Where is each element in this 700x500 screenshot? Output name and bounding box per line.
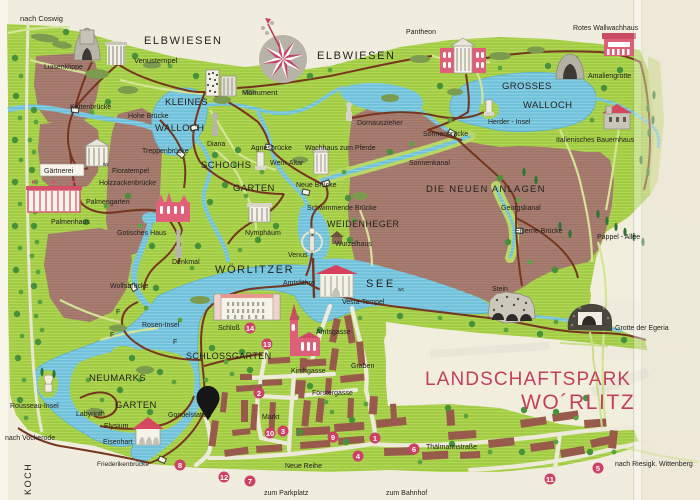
svg-text:Rosen-Insel: Rosen-Insel <box>142 322 180 329</box>
svg-text:11: 11 <box>546 475 554 484</box>
svg-text:Agnesbrücke: Agnesbrücke <box>251 145 292 152</box>
svg-text:Amtsfähre: Amtsfähre <box>283 280 315 287</box>
svg-text:Wern-Altar: Wern-Altar <box>270 160 304 167</box>
svg-text:Herder - Insel: Herder - Insel <box>488 119 531 126</box>
svg-text:2: 2 <box>257 389 261 398</box>
svg-text:Hohe Brücke: Hohe Brücke <box>128 113 169 120</box>
svg-text:nach Riesigk. Wittenberg: nach Riesigk. Wittenberg <box>615 461 693 468</box>
svg-text:KOCH: KOCH <box>23 463 33 495</box>
svg-text:Schloß: Schloß <box>218 325 240 332</box>
svg-text:Rotes Wallwachhaus: Rotes Wallwachhaus <box>573 25 639 32</box>
svg-text:zum Bahnhof: zum Bahnhof <box>386 490 427 497</box>
svg-text:Amaliengrotte: Amaliengrotte <box>588 73 631 80</box>
svg-text:Georgskanal: Georgskanal <box>501 205 541 212</box>
svg-text:Luisenklippe: Luisenklippe <box>44 64 83 71</box>
svg-text:SCHLOSSGARTEN: SCHLOSSGARTEN <box>186 351 272 361</box>
svg-text:Vesta-Tempel: Vesta-Tempel <box>342 299 385 306</box>
svg-text:6: 6 <box>412 445 416 454</box>
svg-text:Stein: Stein <box>492 286 508 293</box>
svg-text:Wurzelhaus: Wurzelhaus <box>335 241 372 248</box>
svg-text:WALLOCH: WALLOCH <box>155 123 204 134</box>
svg-text:3: 3 <box>281 427 285 436</box>
svg-text:F: F <box>173 339 177 346</box>
svg-text:Markt: Markt <box>262 414 280 421</box>
svg-text:10: 10 <box>266 429 274 438</box>
svg-text:ELBWIESEN: ELBWIESEN <box>317 50 396 62</box>
svg-text:WO´RLITZ: WO´RLITZ <box>521 391 635 414</box>
svg-text:Holzzackenbrücke: Holzzackenbrücke <box>99 180 156 187</box>
svg-text:zum Parkplatz: zum Parkplatz <box>264 490 309 497</box>
svg-text:13: 13 <box>263 340 271 349</box>
svg-text:Kirchgasse: Kirchgasse <box>291 368 326 375</box>
svg-text:WÖRLITZER: WÖRLITZER <box>215 264 294 276</box>
svg-text:Kettenbrücke: Kettenbrücke <box>70 104 111 111</box>
svg-text:Amtsgasse: Amtsgasse <box>316 329 351 336</box>
svg-text:Pappel - Allee: Pappel - Allee <box>597 234 640 241</box>
svg-text:Denkmal: Denkmal <box>172 259 200 266</box>
svg-text:5: 5 <box>596 464 600 473</box>
svg-text:Neue Reihe: Neue Reihe <box>285 463 322 470</box>
svg-text:Floratempel: Floratempel <box>112 168 149 175</box>
svg-text:Gärtnerei: Gärtnerei <box>44 168 74 175</box>
svg-text:Palmenhaus: Palmenhaus <box>51 219 90 226</box>
svg-text:Sonnenbrücke: Sonnenbrücke <box>423 131 468 138</box>
svg-text:ELBWIESEN: ELBWIESEN <box>144 35 223 47</box>
svg-text:9: 9 <box>331 433 335 442</box>
svg-text:12: 12 <box>220 473 228 482</box>
svg-text:nach Coswig: nach Coswig <box>20 14 63 23</box>
svg-text:Pantheon: Pantheon <box>406 29 436 36</box>
svg-text:Gotisches Haus: Gotisches Haus <box>117 230 167 237</box>
svg-text:Eiserne Brücke: Eiserne Brücke <box>515 228 563 235</box>
svg-text:WALLOCH: WALLOCH <box>523 100 572 111</box>
svg-text:Diana: Diana <box>207 141 225 148</box>
svg-text:WEIDENHEGER: WEIDENHEGER <box>327 219 400 229</box>
svg-text:F: F <box>110 332 114 339</box>
svg-text:1: 1 <box>373 434 377 443</box>
svg-text:NEUMARKS: NEUMARKS <box>89 373 146 384</box>
svg-text:Dornauszieher: Dornauszieher <box>357 120 403 127</box>
svg-text:Venus: Venus <box>288 252 308 259</box>
svg-text:Wachhaus zum Pferde: Wachhaus zum Pferde <box>305 145 376 152</box>
svg-text:Förstergasse: Förstergasse <box>312 390 353 397</box>
svg-text:Monument: Monument <box>242 88 278 97</box>
svg-text:Treppenbrücke: Treppenbrücke <box>142 148 189 155</box>
svg-text:nach Vockerode: nach Vockerode <box>5 435 55 442</box>
svg-text:Grotte der Egeria: Grotte der Egeria <box>615 325 669 332</box>
svg-text:Graben: Graben <box>351 363 374 370</box>
svg-text:Labyrinth: Labyrinth <box>76 411 105 418</box>
svg-text:Schwimmende Brücke: Schwimmende Brücke <box>307 205 377 212</box>
svg-text:Neue Brücke: Neue Brücke <box>296 182 337 189</box>
svg-text:F: F <box>116 309 120 316</box>
svg-text:DIE NEUEN ANLAGEN: DIE NEUEN ANLAGEN <box>426 184 546 195</box>
svg-text:Italienisches Bauernhaus: Italienisches Bauernhaus <box>556 137 635 144</box>
svg-text:GARTEN: GARTEN <box>233 183 275 194</box>
svg-text:Venustempel: Venustempel <box>134 56 178 65</box>
svg-text:wc: wc <box>398 287 405 293</box>
svg-text:Nymphäum: Nymphäum <box>245 230 281 237</box>
svg-text:wc: wc <box>103 162 110 168</box>
svg-text:Thälmannstraße: Thälmannstraße <box>426 444 477 451</box>
svg-text:Elysium: Elysium <box>104 423 129 430</box>
svg-text:LANDSCHAFTSPARK: LANDSCHAFTSPARK <box>425 369 631 390</box>
svg-text:7: 7 <box>248 477 252 486</box>
svg-text:14: 14 <box>246 324 255 333</box>
svg-text:SCHOCHS: SCHOCHS <box>201 160 251 171</box>
svg-text:Friederikenbrücke: Friederikenbrücke <box>97 461 149 468</box>
svg-text:Palmengarten: Palmengarten <box>86 199 130 206</box>
svg-text:KLEINES: KLEINES <box>165 97 208 108</box>
svg-text:Wolfsbrücke: Wolfsbrücke <box>110 283 148 290</box>
svg-text:8: 8 <box>178 461 182 470</box>
svg-text:Rousseau-Insel: Rousseau-Insel <box>10 403 59 410</box>
svg-text:SEE: SEE <box>366 278 396 290</box>
svg-text:GROSSES: GROSSES <box>502 81 552 92</box>
svg-text:Eisenhart: Eisenhart <box>103 439 133 446</box>
svg-text:GARTEN: GARTEN <box>115 400 157 411</box>
svg-text:Sonnenkanal: Sonnenkanal <box>409 160 450 167</box>
